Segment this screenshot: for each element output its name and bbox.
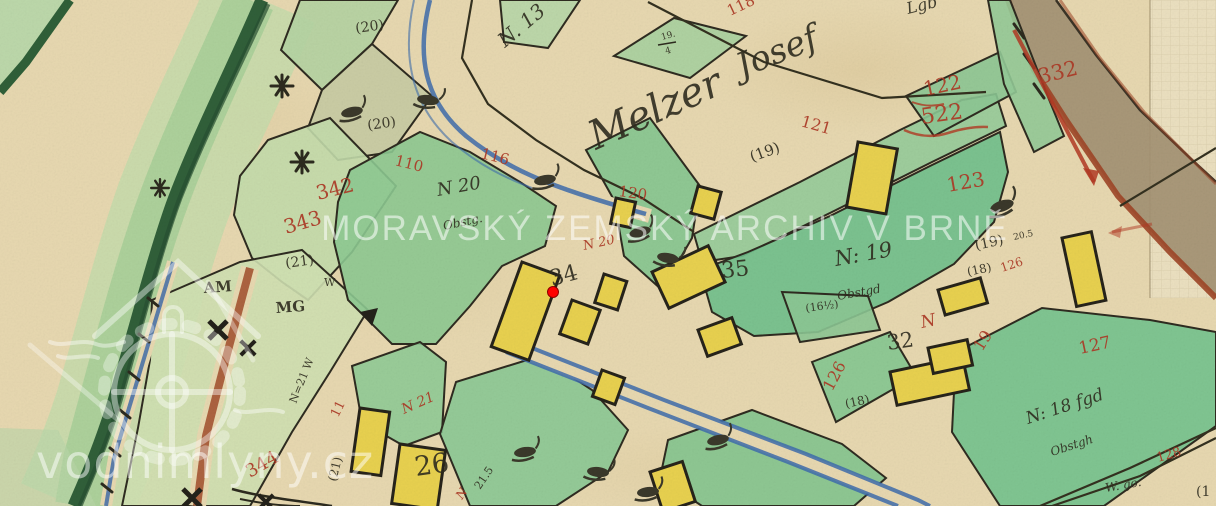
map-canvas[interactable]: 118110116342343344120N 20121122522332123… [0,0,1216,506]
mill-marker[interactable] [548,287,559,298]
map-viewport[interactable]: 118110116342343344120N 20121122522332123… [0,0,1216,506]
site-watermark: vodnimlyny.cz [36,435,374,489]
archive-watermark: MORAVSKÝ ZEMSKÝ ARCHIV V BRNĚ [321,209,1009,248]
scan-grain-overlay [0,0,1216,506]
